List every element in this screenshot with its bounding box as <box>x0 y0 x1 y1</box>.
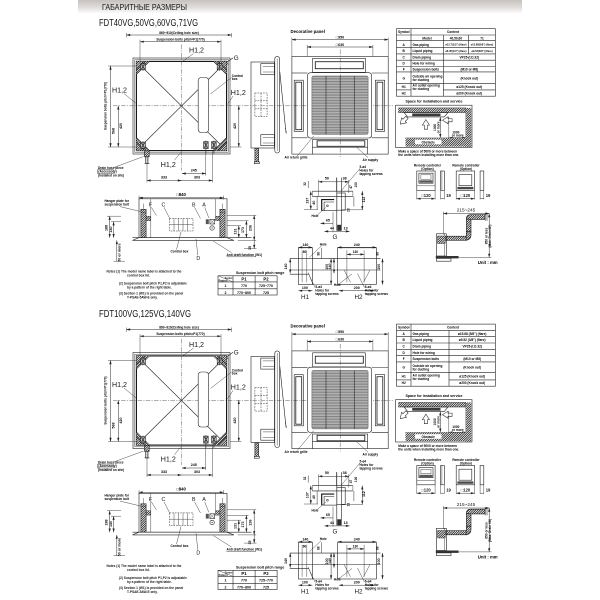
svg-text:140: 140 <box>328 264 332 270</box>
svg-text:Drain piping: Drain piping <box>413 345 432 349</box>
svg-text:tapping screws: tapping screws <box>315 292 338 296</box>
svg-text:□840: □840 <box>176 192 186 197</box>
svg-text:(Installed on site): (Installed on site) <box>98 174 124 178</box>
svg-text:H1,2: H1,2 <box>231 89 246 97</box>
svg-text:H1,2: H1,2 <box>112 86 127 94</box>
svg-text:19: 19 <box>486 193 491 198</box>
svg-text:40: 40 <box>312 201 316 205</box>
svg-text:H1: H1 <box>402 375 406 379</box>
svg-text:38: 38 <box>343 177 347 181</box>
svg-text:C: C <box>162 202 166 208</box>
svg-text:140: 140 <box>302 243 308 247</box>
svg-text:suspension bolt: suspension bolt <box>105 202 130 206</box>
svg-text:Pattern: Pattern <box>219 278 228 282</box>
svg-text:Liquid piping: Liquid piping <box>413 49 433 53</box>
svg-text:P1: P1 <box>241 277 247 282</box>
svg-text:P2: P2 <box>263 277 269 282</box>
svg-text:725: 725 <box>263 291 269 295</box>
svg-text:236: 236 <box>248 225 252 231</box>
svg-text:Hole: Hole <box>334 283 341 287</box>
svg-text:140: 140 <box>109 227 113 233</box>
svg-text:420: 420 <box>119 123 123 129</box>
svg-text:100: 100 <box>377 264 381 270</box>
svg-text:for ducting: for ducting <box>413 367 430 371</box>
svg-text:□950: □950 <box>336 35 344 39</box>
svg-text:FDT100VG,125VG,140VG: FDT100VG,125VG,140VG <box>99 309 191 320</box>
svg-text:ø15.88 (5/8") (flare): ø15.88 (5/8") (flare) <box>458 332 487 336</box>
svg-text:(Max. Drain lift): (Max. Drain lift) <box>488 224 492 247</box>
svg-text:333: 333 <box>161 175 167 179</box>
svg-text:ø6.35(1/4") (flare): ø6.35(1/4") (flare) <box>445 49 466 53</box>
svg-text:Air supply: Air supply <box>363 158 379 162</box>
svg-text:ø125 (Knock out): ø125 (Knock out) <box>459 375 485 379</box>
svg-text:1: 1 <box>225 284 227 288</box>
svg-text:65: 65 <box>326 219 330 223</box>
svg-text:G: G <box>234 55 239 62</box>
svg-text:Obstacle: Obstacle <box>421 140 435 144</box>
svg-text:50: 50 <box>325 177 329 181</box>
svg-text:ø200 (Knock out): ø200 (Knock out) <box>456 91 482 95</box>
svg-text:137: 137 <box>305 198 309 204</box>
svg-text:A: A <box>202 202 206 208</box>
svg-text:H1: H1 <box>301 294 310 301</box>
svg-text:131: 131 <box>233 229 237 235</box>
svg-text:Content: Content <box>447 30 460 34</box>
svg-text:H2: H2 <box>354 294 363 301</box>
svg-text:the units when installing more: the units when installing more than one. <box>398 153 459 157</box>
svg-text:H2: H2 <box>402 91 406 95</box>
svg-text:Content: Content <box>447 326 460 330</box>
svg-text:□630: □630 <box>336 43 344 47</box>
svg-text:100: 100 <box>302 286 308 290</box>
svg-text:19: 19 <box>446 193 451 198</box>
svg-text:35: 35 <box>248 246 252 250</box>
svg-text:420: 420 <box>233 123 237 129</box>
svg-text:□120: □120 <box>461 193 471 198</box>
svg-text:Decorative panel: Decorative panel <box>291 29 325 34</box>
svg-text:for ducting: for ducting <box>413 78 430 82</box>
svg-text:tapping screws: tapping screws <box>360 172 383 176</box>
svg-text:303: 303 <box>194 175 200 179</box>
svg-text:(M10 or M8): (M10 or M8) <box>463 357 481 361</box>
svg-text:50 or more: 50 or more <box>118 243 122 261</box>
svg-text:(Knock out): (Knock out) <box>463 366 481 370</box>
svg-text:ø15.88(5/8") (flare): ø15.88(5/8") (flare) <box>471 43 494 47</box>
svg-text:770~800: 770~800 <box>237 291 251 295</box>
svg-text:88: 88 <box>316 252 320 256</box>
svg-text:2: 2 <box>225 291 227 295</box>
svg-text:D: D <box>196 256 200 262</box>
svg-text:32: 32 <box>303 182 307 186</box>
svg-text:Unit : mm: Unit : mm <box>478 260 498 265</box>
svg-text:F: F <box>403 67 405 71</box>
svg-text:44: 44 <box>330 226 334 230</box>
svg-text:ø125 (Knock out): ø125 (Knock out) <box>456 85 482 89</box>
svg-text:box: box <box>232 77 238 81</box>
svg-text:G: G <box>333 234 338 241</box>
svg-text:Suspension bolts: Suspension bolts <box>413 67 440 71</box>
svg-text:Suspension bolts: Suspension bolts <box>413 357 440 361</box>
svg-text:770: 770 <box>241 284 247 288</box>
svg-text:or more: or more <box>436 121 440 133</box>
svg-text:VP25-(I.D.32): VP25-(I.D.32) <box>460 55 480 59</box>
svg-text:tapping screws: tapping screws <box>365 292 388 296</box>
svg-text:Model: Model <box>422 36 431 40</box>
svg-text:ø9.52 (3/8") (flare): ø9.52 (3/8") (flare) <box>459 338 486 342</box>
svg-text:860~910(Ceiling hole size): 860~910(Ceiling hole size) <box>159 31 199 35</box>
svg-text:Suspension bolts pitch=P1(770): Suspension bolts pitch=P1(770) <box>156 37 204 41</box>
svg-text:725~770: 725~770 <box>259 284 273 288</box>
svg-text:for ducting: for ducting <box>413 377 430 381</box>
svg-text:(Knock out): (Knock out) <box>460 77 478 81</box>
svg-text:13: 13 <box>344 226 348 230</box>
svg-text:ø12.7(1/2") (flare): ø12.7(1/2") (flare) <box>445 43 466 47</box>
svg-text:(Option): (Option) <box>460 167 472 171</box>
svg-text:H1,2: H1,2 <box>161 161 176 169</box>
svg-text:T-PSAE-5AW-E only.: T-PSAE-5AW-E only. <box>127 295 158 299</box>
svg-text:or more: or more <box>452 134 464 138</box>
svg-text:for ducting: for ducting <box>413 87 430 91</box>
svg-text:ø200 (Knock out): ø200 (Knock out) <box>459 381 485 385</box>
svg-text:FDT40VG,50VG,60VG,71VG: FDT40VG,50VG,60VG,71VG <box>99 18 198 29</box>
svg-text:□120: □120 <box>421 193 431 198</box>
svg-text:173: 173 <box>241 227 245 233</box>
svg-text:47: 47 <box>349 185 353 189</box>
svg-text:(Option): (Option) <box>421 167 433 171</box>
svg-text:Suspension bolts pitch=P1(770): Suspension bolts pitch=P1(770) <box>103 82 107 130</box>
svg-text:(M10 or M8): (M10 or M8) <box>460 67 478 71</box>
svg-text:Gas piping: Gas piping <box>413 332 430 336</box>
svg-text:H1,2: H1,2 <box>189 47 204 55</box>
svg-text:Air return grille: Air return grille <box>285 156 308 160</box>
svg-text:F: F <box>403 357 405 361</box>
svg-text:Anti draft function (W1): Anti draft function (W1) <box>227 253 262 257</box>
svg-text:215~245: 215~245 <box>457 208 476 213</box>
svg-text:Liquid piping: Liquid piping <box>413 338 433 342</box>
svg-text:Space for installation and ser: Space for installation and service <box>405 99 462 103</box>
svg-text:Hole: Hole <box>320 242 327 246</box>
svg-text:60: 60 <box>303 250 307 254</box>
svg-text:Hole for wiring: Hole for wiring <box>413 351 435 355</box>
svg-text:Hole for wiring: Hole for wiring <box>413 62 435 66</box>
svg-text:140: 140 <box>284 264 288 270</box>
svg-text:VP25-(I.D.32): VP25-(I.D.32) <box>462 345 482 349</box>
svg-text:71: 71 <box>480 36 484 40</box>
svg-text:ø9.52(3/8") (flare): ø9.52(3/8") (flare) <box>471 49 492 53</box>
svg-text:88: 88 <box>376 252 380 256</box>
svg-text:control box lid.: control box lid. <box>127 274 150 278</box>
svg-text:240: 240 <box>354 243 360 247</box>
svg-text:Suspension bolt pitch range: Suspension bolt pitch range <box>236 271 284 275</box>
svg-text:H2: H2 <box>402 381 406 385</box>
svg-text:H1: H1 <box>402 85 406 89</box>
svg-text:Gas piping: Gas piping <box>413 43 430 47</box>
svg-text:by a pattern of the right tabl: by a pattern of the right table. <box>127 285 172 289</box>
svg-text:245: 245 <box>191 169 197 173</box>
svg-text:568: 568 <box>112 128 116 134</box>
svg-text:130: 130 <box>353 250 359 254</box>
svg-text:Drain piping: Drain piping <box>413 55 432 59</box>
svg-text:40,50,60: 40,50,60 <box>450 36 463 40</box>
svg-text:B: B <box>192 202 196 208</box>
svg-text:Symbol: Symbol <box>398 30 410 34</box>
svg-text:Symbol: Symbol <box>398 326 410 330</box>
svg-text:ГАБАРИТНЫЕ РАЗМЕРЫ: ГАБАРИТНЫЕ РАЗМЕРЫ <box>102 3 187 12</box>
svg-text:200: 200 <box>354 286 360 290</box>
svg-text:100: 100 <box>354 182 358 188</box>
svg-text:Control box: Control box <box>171 250 189 254</box>
